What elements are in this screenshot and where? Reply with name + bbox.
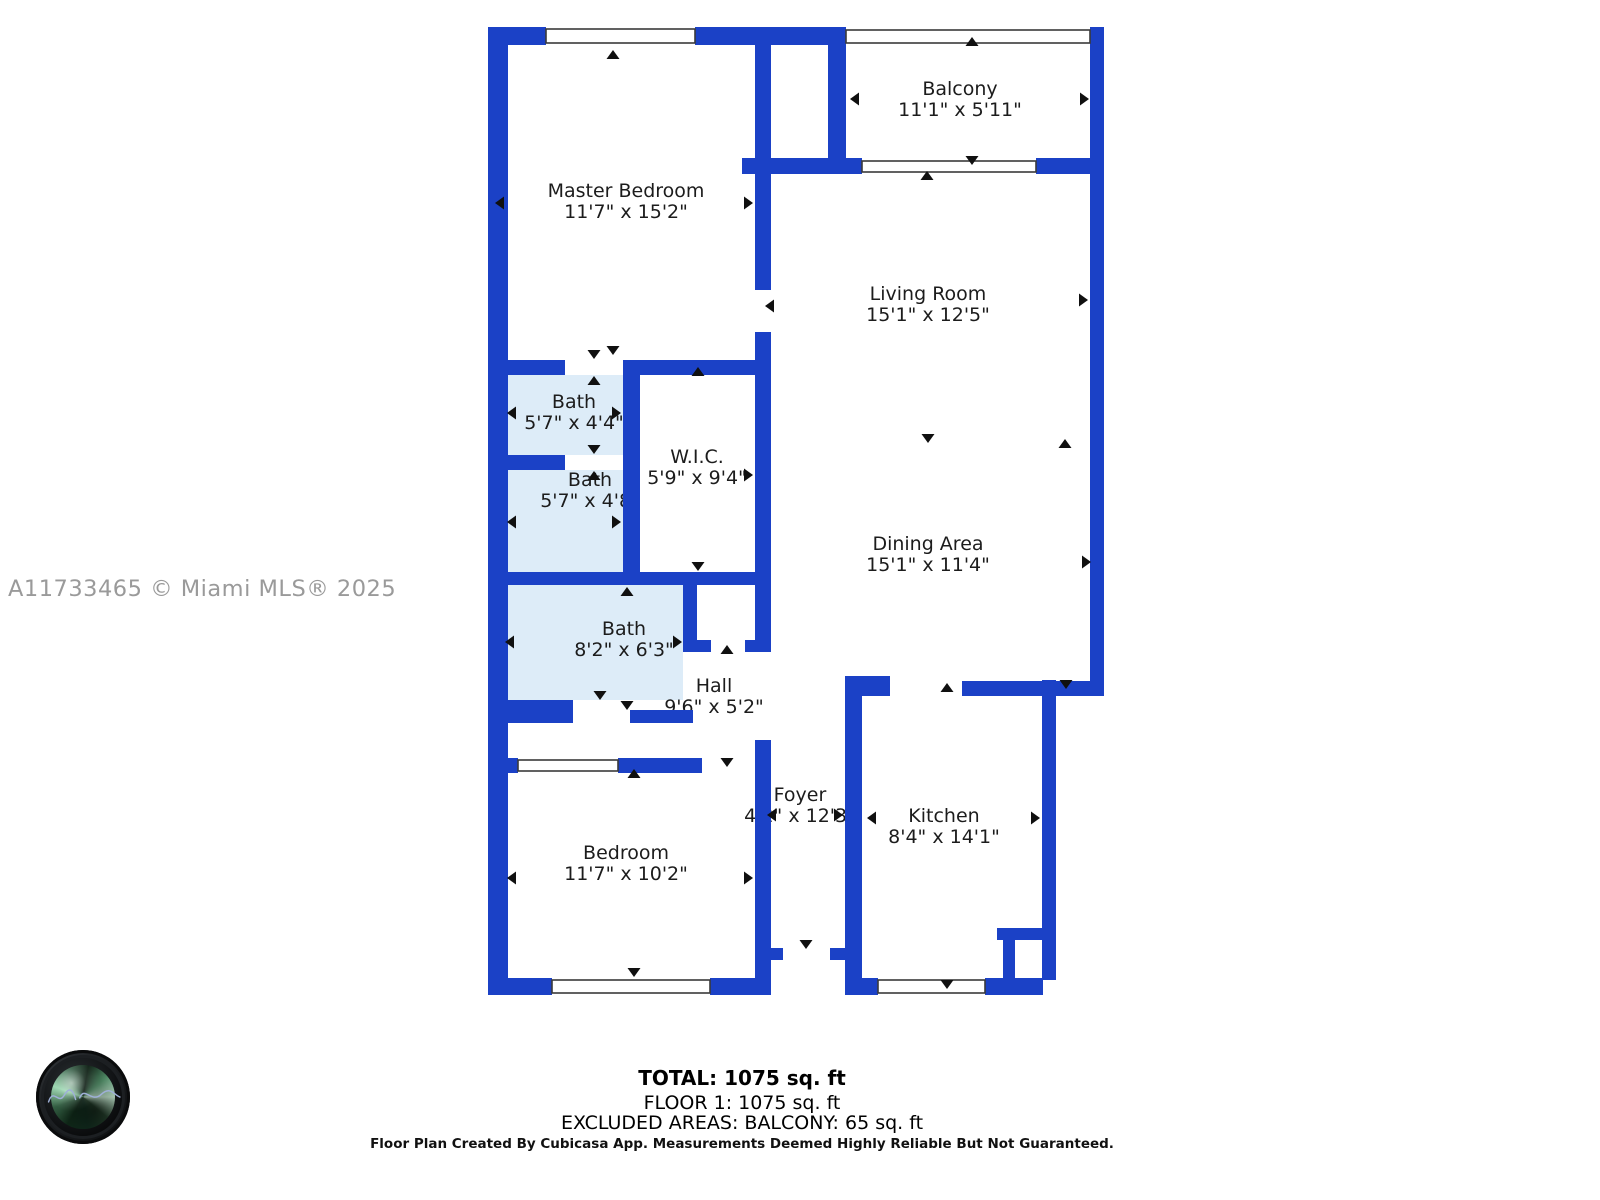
room-label-wic: W.I.C. 5'9" x 9'4" xyxy=(647,447,747,489)
room-name: Bedroom xyxy=(564,843,688,864)
room-dims: 5'9" x 9'4" xyxy=(647,468,747,489)
room-dims: 11'7" x 10'2" xyxy=(564,864,688,885)
room-label-bath-2: Bath 5'7" x 4'8" xyxy=(540,470,640,512)
signature-icon xyxy=(42,1080,124,1114)
room-dims: 11'7" x 15'2" xyxy=(548,202,705,223)
excluded-area-text: EXCLUDED AREAS: BALCONY: 65 sq. ft xyxy=(561,1113,923,1133)
room-dims: 8'4" x 14'1" xyxy=(888,827,1000,848)
disclaimer-text: Floor Plan Created By Cubicasa App. Meas… xyxy=(370,1136,1114,1152)
room-name: Balcony xyxy=(898,79,1022,100)
room-name: Bath xyxy=(574,619,674,640)
room-name: Master Bedroom xyxy=(548,181,705,202)
room-dims: 11'1" x 5'11" xyxy=(898,100,1022,121)
room-label-dining-area: Dining Area 15'1" x 11'4" xyxy=(866,534,990,576)
room-dims: 9'6" x 5'2" xyxy=(664,697,764,718)
total-area-text: TOTAL: 1075 sq. ft xyxy=(561,1066,923,1090)
area-summary: TOTAL: 1075 sq. ft FLOOR 1: 1075 sq. ft … xyxy=(561,1066,923,1133)
room-dims: 5'7" x 4'8" xyxy=(540,491,640,512)
floor-area-text: FLOOR 1: 1075 sq. ft xyxy=(561,1093,923,1113)
room-label-balcony: Balcony 11'1" x 5'11" xyxy=(898,79,1022,121)
floorplan-page: Master Bedroom 11'7" x 15'2" Balcony 11'… xyxy=(0,0,1600,1200)
room-name: Foyer xyxy=(744,785,856,806)
room-label-living-room: Living Room 15'1" x 12'5" xyxy=(866,284,990,326)
room-dims: 15'1" x 12'5" xyxy=(866,305,990,326)
photographer-logo xyxy=(36,1050,130,1144)
room-dims: 4'2" x 12'3" xyxy=(744,806,856,827)
room-label-hall: Hall 9'6" x 5'2" xyxy=(664,676,764,718)
room-name: Bath xyxy=(540,470,640,491)
mls-watermark: A11733465 © Miami MLS® 2025 xyxy=(8,576,396,602)
room-name: W.I.C. xyxy=(647,447,747,468)
room-label-master-bedroom: Master Bedroom 11'7" x 15'2" xyxy=(548,181,705,223)
room-dims: 8'2" x 6'3" xyxy=(574,640,674,661)
room-name: Bath xyxy=(524,392,624,413)
room-label-bath-3: Bath 8'2" x 6'3" xyxy=(574,619,674,661)
room-dims: 15'1" x 11'4" xyxy=(866,555,990,576)
room-label-foyer: Foyer 4'2" x 12'3" xyxy=(744,785,856,827)
room-name: Living Room xyxy=(866,284,990,305)
room-label-bedroom: Bedroom 11'7" x 10'2" xyxy=(564,843,688,885)
room-label-bath-1: Bath 5'7" x 4'4" xyxy=(524,392,624,434)
room-dims: 5'7" x 4'4" xyxy=(524,413,624,434)
room-name: Hall xyxy=(664,676,764,697)
room-name: Dining Area xyxy=(866,534,990,555)
room-name: Kitchen xyxy=(888,806,1000,827)
room-label-kitchen: Kitchen 8'4" x 14'1" xyxy=(888,806,1000,848)
